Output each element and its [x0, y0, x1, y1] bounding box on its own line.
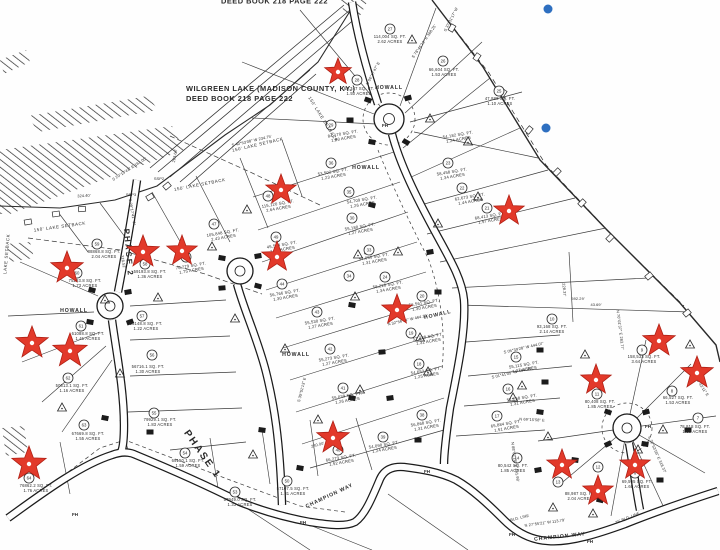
- blue-dot-marker: [542, 124, 551, 133]
- survey-point-label: SSP2: [154, 176, 165, 181]
- road-name-label: HOWALL: [282, 352, 310, 358]
- lot-area-label: 57949.0 SQ. FT.1.33 ACRES: [224, 497, 257, 507]
- lot-number: 42: [328, 347, 333, 352]
- structure-square: [258, 427, 266, 433]
- lot-area-label: 66,604 SQ. FT.1.53 ACRES: [429, 67, 459, 77]
- lot-area-label: 67669.8 SQ. FT.1.55 ACRES: [72, 431, 105, 441]
- star-center-dot: [141, 250, 145, 254]
- lot-number: 48: [266, 194, 271, 199]
- bearing-label: 592.29': [571, 296, 584, 301]
- lot-area-label: 66,527 SQ. FT.1.53 ACRES: [663, 395, 693, 405]
- lot-area-label: 53148.8 SQ. FT.1.22 ACRES: [130, 321, 163, 331]
- road-name-label: HOWALL: [352, 165, 380, 171]
- lot-number: 41: [341, 386, 346, 391]
- triangle-dot: [429, 119, 431, 121]
- lot-number: 47: [212, 222, 217, 227]
- fire-hydrant-label: FH: [587, 539, 594, 544]
- wilgreen-lake-plat-map: WILGREEN LAKE (MADISON COUNTY, KY.) DEED…: [0, 0, 720, 550]
- star-center-dot: [596, 489, 600, 493]
- star-center-dot: [68, 349, 72, 353]
- lot-number: 39: [381, 435, 386, 440]
- lot-number: 34: [347, 274, 352, 279]
- structure-square: [386, 395, 394, 401]
- triangle-dot: [411, 40, 413, 42]
- lot-number: 33: [367, 248, 372, 253]
- line-marker-box: [52, 211, 60, 217]
- lot-number: 36: [329, 161, 334, 166]
- lot-number: 25: [497, 89, 502, 94]
- lot-number: 44: [280, 282, 285, 287]
- lot-number: 13: [556, 480, 561, 485]
- lot-number: 18: [417, 362, 422, 367]
- fire-hydrant-label: FH: [645, 424, 652, 429]
- triangle-dot: [104, 300, 106, 302]
- lot-area-label: 78,818 SQ. FT.1.80 ACRES: [680, 424, 710, 434]
- lot-area-label: 93,168 SQ. FT.2.14 ACRES: [537, 324, 567, 334]
- lot-number: 24: [383, 275, 388, 280]
- lot-area-label: 79929.1 SQ. FT.1.83 ACRES: [144, 417, 177, 427]
- star-center-dot: [560, 463, 564, 467]
- bearing-label: 324.40': [77, 193, 91, 199]
- plat-map-screenshot: WILGREEN LAKE (MADISON COUNTY, KY.) DEED…: [0, 0, 720, 550]
- lot-number: 28: [355, 78, 360, 83]
- triangle-dot: [552, 508, 554, 510]
- star-center-dot: [507, 209, 511, 213]
- star-center-dot: [331, 436, 335, 440]
- lot-area-label: 80,408 SQ. FT.1.85 ACRES: [585, 399, 615, 409]
- map-title-line1: WILGREEN LAKE (MADISON COUNTY, KY.): [186, 84, 355, 93]
- triangle-dot: [234, 319, 236, 321]
- star-center-dot: [594, 378, 598, 382]
- structure-square: [378, 349, 385, 355]
- star-center-dot: [657, 339, 661, 343]
- star-center-dot: [695, 371, 699, 375]
- structure-square: [537, 348, 544, 353]
- fire-hydrant-label: FH: [300, 520, 307, 525]
- lot-number: 62: [66, 376, 71, 381]
- lot-number: 17: [495, 414, 500, 419]
- lot-area-label: 56716.1 SQ. FT.1.30 ACRES: [132, 364, 165, 374]
- lot: 34: [344, 271, 354, 281]
- lot-area-label: 158,533 SQ. FT.3.64 ACRES: [628, 354, 661, 364]
- lot-area-label: 80,542 SQ. FT.1.85 ACRES: [498, 463, 528, 473]
- triangle-dot: [317, 420, 319, 422]
- star-center-dot: [27, 462, 31, 466]
- star-center-dot: [180, 249, 184, 253]
- structure-square: [536, 409, 544, 415]
- fire-hydrant-label: FH: [424, 469, 431, 474]
- star-center-dot: [336, 70, 340, 74]
- lot-number: 20: [420, 294, 425, 299]
- triangle-dot: [354, 297, 356, 299]
- triangle-dot: [211, 247, 213, 249]
- lot: 12: [593, 462, 603, 472]
- lot-area-label: 59193.8 SQ. FT.1.36 ACRES: [134, 269, 167, 279]
- triangle-dot: [437, 224, 439, 226]
- triangle-dot: [252, 455, 254, 457]
- lot-number: 56: [150, 353, 155, 358]
- line-marker-box: [78, 206, 85, 212]
- star-center-dot: [65, 266, 69, 270]
- cut-off-text: DEED BOOK 218 PAGE 222: [221, 0, 328, 6]
- lot-number: 35: [347, 190, 352, 195]
- triangle-dot: [284, 349, 286, 351]
- line-marker-box: [24, 219, 32, 225]
- lot-number: 49: [274, 235, 279, 240]
- survey-point-label: SSP3: [126, 192, 137, 197]
- lot-area-label: 76862.2 SQ. FT.1.76 ACRES: [20, 483, 53, 493]
- lot-number: 19: [409, 331, 414, 336]
- star-center-dot: [395, 308, 399, 312]
- triangle-dot: [119, 374, 121, 376]
- lot-number: 22: [460, 186, 465, 191]
- lot-number: 10: [550, 317, 555, 322]
- lot-number: 57: [140, 314, 145, 319]
- star-center-dot: [279, 188, 283, 192]
- structure-square: [542, 380, 549, 385]
- triangle-dot: [662, 430, 664, 432]
- road-name-label: HOWALL: [60, 308, 88, 314]
- triangle-dot: [397, 252, 399, 254]
- lot-area-label: 47,888 SQ. FT.1.10 ACRES: [485, 96, 515, 106]
- triangle-dot: [467, 142, 469, 144]
- lot-number: 27: [388, 27, 393, 32]
- structure-square: [657, 478, 664, 483]
- structure-square: [347, 118, 354, 123]
- lot-area-label: 50613.1 SQ. FT.1.16 ACRES: [56, 383, 89, 393]
- bearing-label: 43.69': [590, 302, 601, 307]
- fire-hydrant-label: FH: [72, 512, 79, 517]
- triangle-dot: [637, 450, 639, 452]
- lot-number: 21: [485, 206, 490, 211]
- lot-number: 61: [79, 324, 84, 329]
- structure-square: [415, 438, 422, 443]
- lot-area-label: 65,347 SQ. FT.1.50 ACRES: [344, 86, 374, 96]
- lot-number: 26: [441, 59, 446, 64]
- lot-area-label: 88868.8 SQ. FT.2.04 ACRES: [88, 249, 121, 259]
- lot-area-label: 61088.8 SQ. FT.1.41 ACRES: [72, 331, 105, 341]
- fire-hydrant-label: FH: [509, 532, 516, 537]
- structure-square: [435, 290, 442, 295]
- star-center-dot: [30, 341, 34, 345]
- triangle-dot: [584, 355, 586, 357]
- lot-number: 64: [27, 476, 32, 481]
- triangle-dot: [547, 437, 549, 439]
- lot-number: 15: [514, 355, 519, 360]
- triangle-dot: [157, 298, 159, 300]
- lot-number: 12: [596, 465, 601, 470]
- lot-number: 16: [506, 387, 511, 392]
- road-name-label: HOWALL: [375, 85, 403, 91]
- lot-number: 55: [152, 411, 157, 416]
- triangle-dot: [592, 514, 594, 516]
- triangle-dot: [61, 408, 63, 410]
- lot-number: 54: [183, 451, 188, 456]
- lot-number: 59: [95, 242, 100, 247]
- blue-dot-marker: [544, 5, 553, 14]
- lot-number: 11: [595, 392, 600, 397]
- triangle-dot: [689, 345, 691, 347]
- star-center-dot: [633, 463, 637, 467]
- lot-number: 38: [420, 413, 425, 418]
- lot-number: 50: [285, 479, 290, 484]
- lot-number: 43: [315, 310, 320, 315]
- structure-square: [218, 285, 225, 291]
- lot-area-label: 57107.5 SQ. FT.1.31 ACRES: [277, 486, 310, 496]
- lot-number: 63: [82, 423, 87, 428]
- lot-number: 30: [350, 216, 355, 221]
- lot-number: 53: [233, 490, 238, 495]
- map-title-line2: DEED BOOK 218 PAGE 222: [186, 94, 293, 103]
- lot-number: 23: [446, 161, 451, 166]
- triangle-dot: [246, 210, 248, 212]
- lot-area-label: 69,505 SQ. FT.1.60 ACRES: [622, 479, 652, 489]
- triangle-dot: [521, 386, 523, 388]
- fire-hydrant-label: FH: [382, 123, 389, 128]
- lot-area-label: 114,004 SQ. FT.2.62 ACRES: [374, 34, 407, 44]
- star-center-dot: [275, 255, 279, 259]
- structure-square: [147, 430, 154, 435]
